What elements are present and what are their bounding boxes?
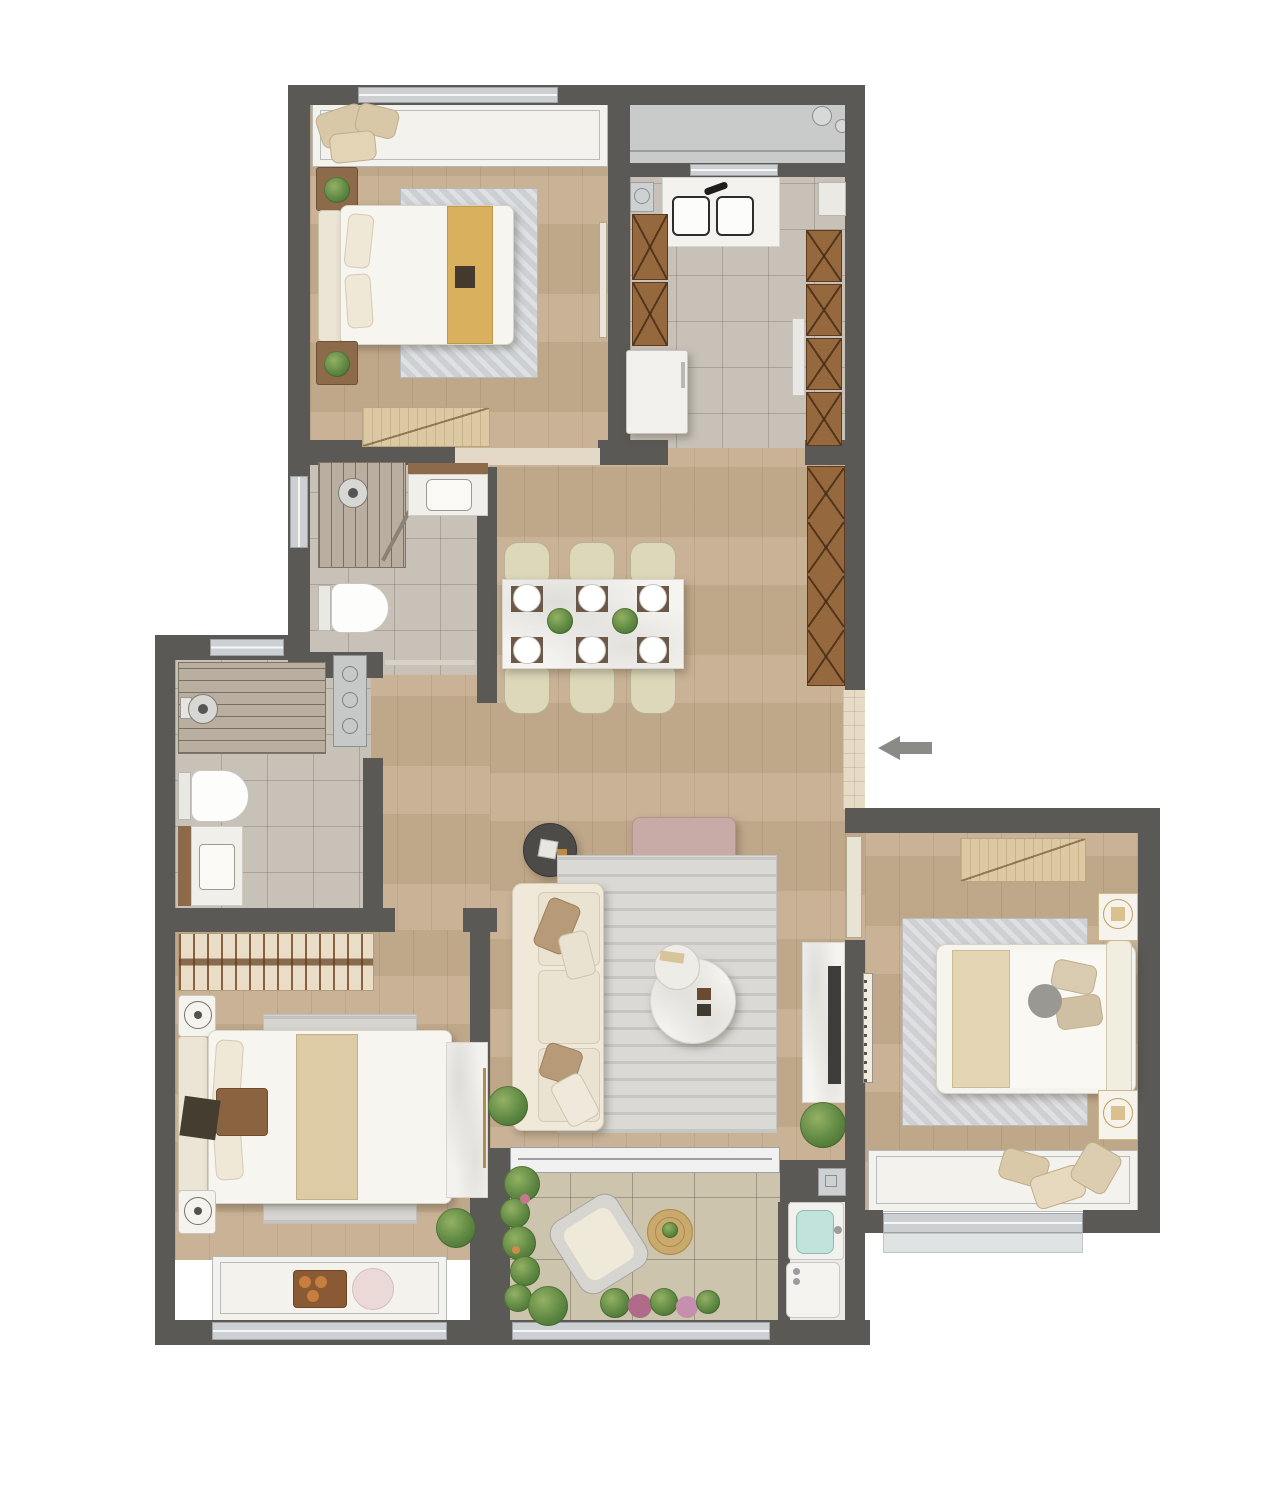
bedroom3-box-north (1111, 907, 1125, 921)
balcony-flowerbed-2 (628, 1294, 652, 1318)
dining-plate-1 (513, 584, 541, 612)
dining-chair-2 (569, 542, 615, 584)
dining-plate-4 (513, 636, 541, 664)
laundry-faucet (834, 1226, 842, 1234)
living-plant (800, 1102, 846, 1148)
window-kitchen-pass (690, 164, 778, 176)
bedroom3-bench (960, 838, 1086, 882)
threshold-bath1-door (385, 660, 475, 665)
bath2-toilet (191, 770, 249, 822)
bedroom3-radiator (863, 973, 873, 1083)
bath1-toilet-tank (318, 585, 331, 631)
bedroom1-pillow-2 (344, 273, 374, 329)
balcony-flowerbed-3 (650, 1288, 678, 1316)
balcony-flower-2 (512, 1246, 520, 1254)
sill-bedroom3-south (883, 1233, 1083, 1253)
dining-storage-panel-1 (808, 468, 844, 519)
kitchen-fridge-handle (681, 362, 685, 388)
wall-bedroom2-north-west (155, 908, 395, 932)
dining-storage-panel-3 (808, 576, 844, 627)
kitchen-gas-dial-icon (634, 188, 650, 204)
bedroom1-cushion-3 (329, 130, 378, 165)
bedroom1-plant-north (324, 177, 350, 203)
bedroom3-box-south (1111, 1106, 1125, 1120)
bedroom2-bay-tray-dot-1 (299, 1276, 311, 1288)
bath2-shower-head-dot (198, 704, 208, 714)
bedroom3-pillow-round (1028, 984, 1062, 1018)
living-corner-plant (488, 1086, 528, 1126)
balcony-glass-door-line (518, 1158, 772, 1160)
bath1-vanity-backsplash (408, 463, 488, 474)
window-bedroom3-south (883, 1213, 1083, 1233)
bedroom3-bed-runner (952, 950, 1010, 1088)
bath2-sink (199, 844, 235, 890)
balcony-flowerbed-5 (696, 1290, 720, 1314)
wall-left-upper (288, 85, 310, 660)
bedroom2-bed-bow (179, 1096, 220, 1141)
window-bedroom2-south (212, 1322, 447, 1340)
laundry-washer-dot-2 (793, 1278, 800, 1285)
window-bath1-west (290, 476, 308, 548)
dining-storage-panel-4 (808, 630, 844, 683)
living-coffee-book-2 (697, 1004, 711, 1016)
bedroom2-plant (436, 1208, 476, 1248)
kitchen-sink-right (716, 196, 754, 236)
ac-platform-line (630, 150, 850, 152)
balcony-flowerbed-4 (676, 1296, 698, 1318)
bedroom1-mirror (599, 222, 607, 338)
balcony-plant-6 (528, 1286, 568, 1326)
bath2-vanity-side (178, 826, 191, 906)
kitchen-cabinet-east-3 (806, 338, 842, 390)
bedroom2-lamp-north-dot (194, 1011, 202, 1019)
dining-plate-5 (578, 636, 606, 664)
kitchen-sink-left (672, 196, 710, 236)
bedroom1-bed-tray (455, 266, 475, 288)
wall-kitchen-south-left (608, 440, 668, 465)
bedroom2-bed-runner (296, 1034, 358, 1200)
ac-vent-large-icon (812, 106, 832, 126)
bath2-shelf-ring-2 (342, 692, 358, 708)
dining-storage-panel-2 (808, 522, 844, 573)
wall-bedroom3-south-west (865, 1210, 883, 1233)
kitchen-fridge (626, 350, 688, 434)
wall-bedroom2-north-east (463, 908, 497, 932)
window-bath2-north (210, 639, 284, 656)
balcony-glass-door (510, 1147, 780, 1173)
bath2-toilet-tank (178, 772, 191, 820)
bedroom2-wardrobe (178, 933, 374, 991)
balcony-table-plant (662, 1222, 678, 1238)
bedroom3-bed-headboard (1106, 940, 1132, 1096)
bedroom1-bench (362, 407, 490, 447)
living-side-table-book (538, 839, 559, 860)
entry-arrow-head-icon (878, 736, 900, 760)
dining-plate-6 (639, 636, 667, 664)
kitchen-cabinet-west-2 (632, 282, 668, 346)
kitchen-hatch-panel (818, 182, 846, 216)
dining-plate-2 (578, 584, 606, 612)
bath1-sink (426, 479, 472, 511)
bedroom2-bed-throw (216, 1088, 268, 1136)
kitchen-cabinet-east-1 (806, 230, 842, 282)
floor-plan (0, 0, 1280, 1498)
kitchen-cabinet-west-1 (632, 214, 668, 280)
dining-chair-4 (504, 664, 550, 714)
bedroom2-bay-tray-dot-3 (307, 1290, 319, 1302)
living-tv (828, 966, 841, 1084)
bath1-shower-floor (318, 462, 406, 568)
bath2-shelf-ring-1 (342, 666, 358, 682)
kitchen-cabinet-east-2 (806, 284, 842, 336)
dining-chair-3 (630, 542, 676, 584)
laundry-panel-icon (825, 1175, 837, 1187)
bath2-shelf-ring-3 (342, 718, 358, 734)
balcony-flowerbed-1 (600, 1288, 630, 1318)
laundry-washer-dot-1 (793, 1268, 800, 1275)
wall-bedroom3-east (1138, 808, 1160, 1233)
bedroom2-bay-plate (352, 1268, 394, 1310)
entry-arrow-shaft (898, 742, 932, 754)
door-bedroom3 (846, 836, 862, 938)
bedroom2-bay-tray-dot-2 (315, 1276, 327, 1288)
bedroom1-plant-south (324, 351, 350, 377)
bedroom2-desk (446, 1042, 488, 1198)
window-bedroom1-north (358, 87, 558, 103)
bath1-shower-head-dot (348, 488, 358, 498)
entry-threshold-tile (843, 690, 865, 810)
wall-right-upper (845, 85, 865, 690)
kitchen-cabinet-east-4 (806, 392, 842, 446)
dining-plate-3 (639, 584, 667, 612)
dining-chair-1 (504, 542, 550, 584)
balcony-plant-4 (510, 1256, 540, 1286)
wall-left-lower (155, 635, 175, 1345)
balcony-plant-3 (502, 1226, 536, 1260)
bath1-toilet (331, 583, 389, 633)
kitchen-dishwasher (792, 318, 805, 396)
laundry-sink-basin (796, 1210, 834, 1254)
wall-bath2-hall (363, 758, 383, 932)
living-sofa-seat-2 (538, 970, 600, 1044)
wall-bedroom3-south-east (1083, 1210, 1160, 1233)
hall-floor (363, 675, 497, 932)
living-coffee-book-1 (697, 988, 711, 1000)
dining-centerpiece-1 (547, 608, 573, 634)
wall-entry-south (845, 808, 1160, 833)
bedroom2-desk-edge (483, 1068, 486, 1168)
dining-centerpiece-2 (612, 608, 638, 634)
dining-chair-5 (569, 664, 615, 714)
bedroom2-lamp-south-dot (194, 1207, 202, 1215)
bedroom1-bed-headboard (318, 210, 342, 342)
wall-right-lower (845, 940, 865, 1345)
balcony-flower-1 (520, 1194, 530, 1204)
dining-chair-6 (630, 664, 676, 714)
